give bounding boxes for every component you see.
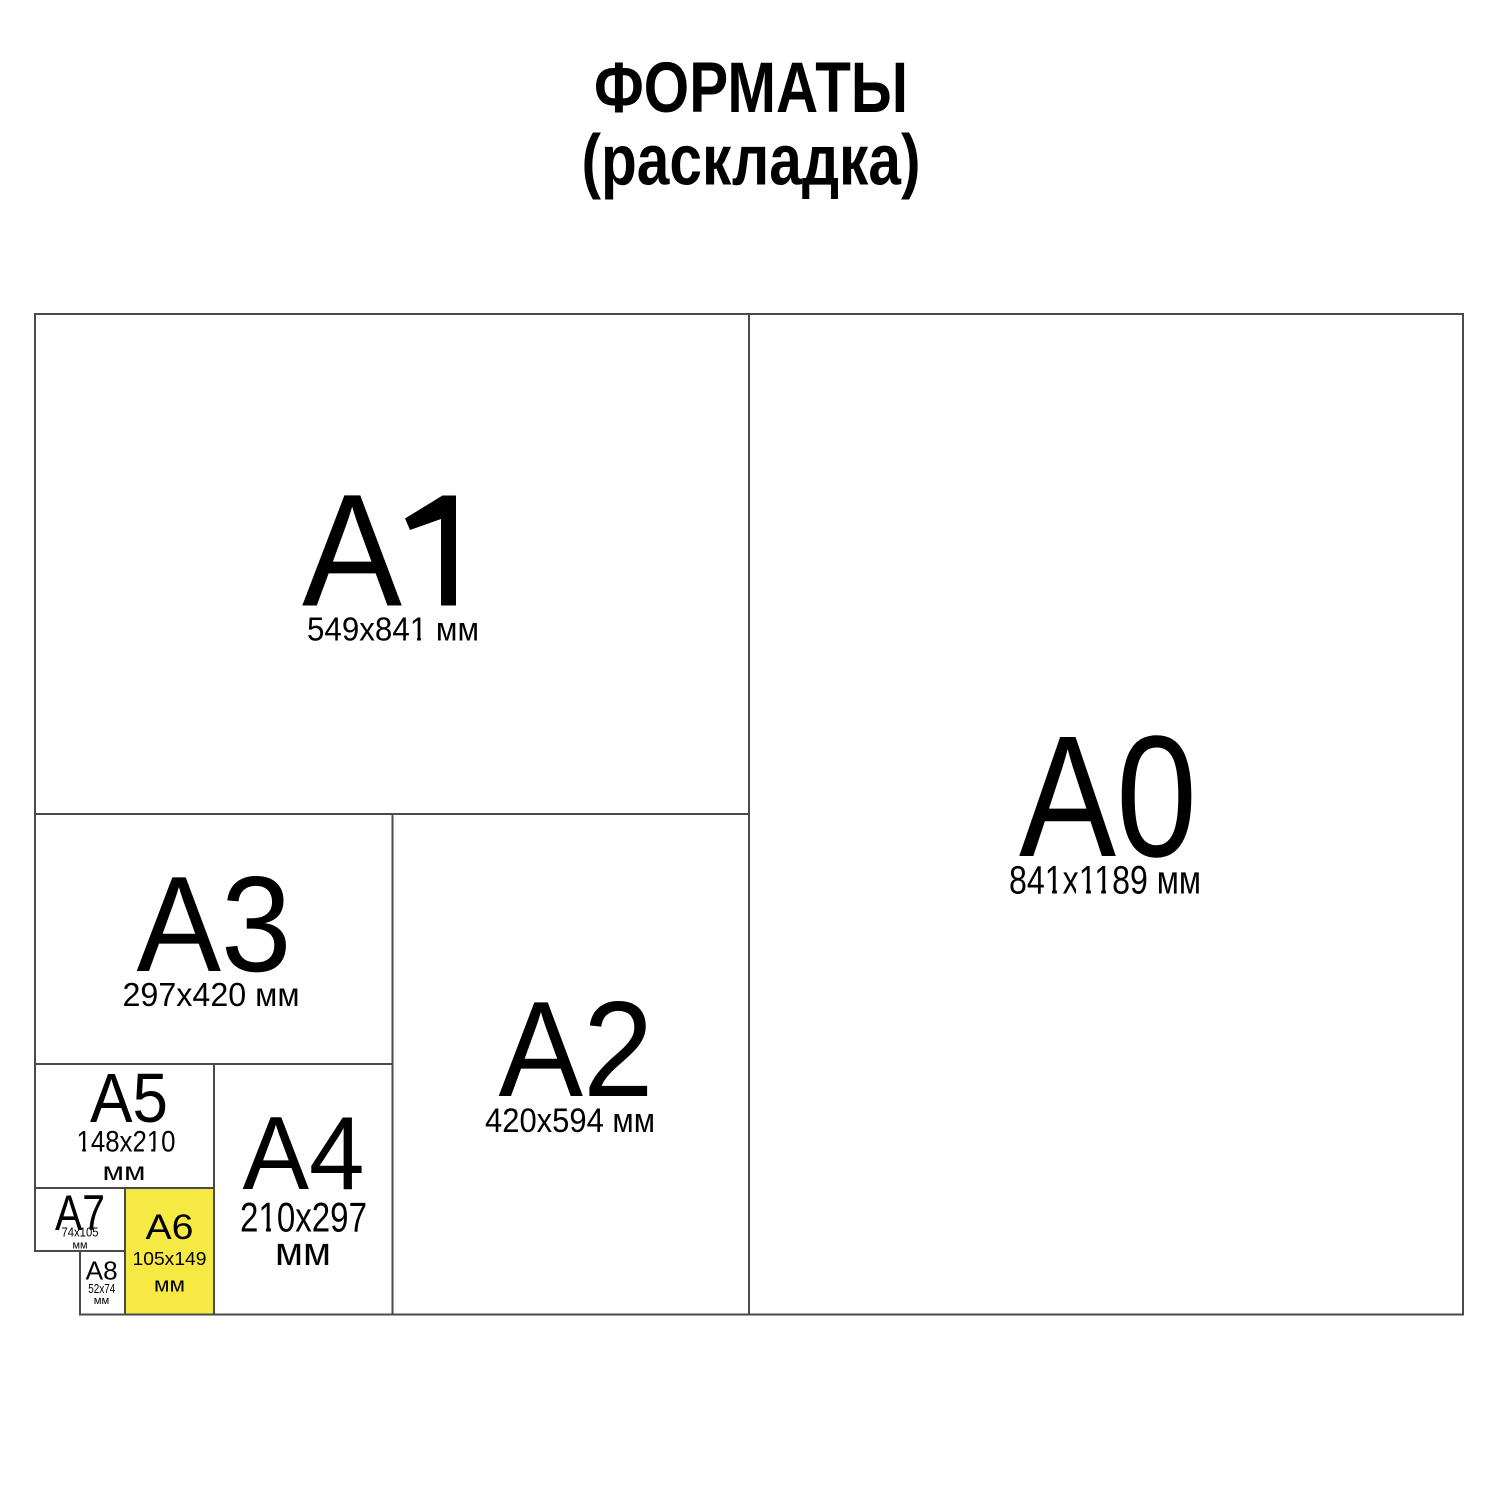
svg-text:841х1189 мм: 841х1189 мм xyxy=(1009,859,1201,903)
svg-text:549х841 мм: 549х841 мм xyxy=(307,611,479,648)
svg-text:мм: мм xyxy=(73,1240,88,1252)
svg-text:74х105: 74х105 xyxy=(62,1225,99,1240)
svg-text:(раскладка): (раскладка) xyxy=(582,122,921,201)
svg-text:А6: А6 xyxy=(146,1208,194,1247)
svg-text:мм: мм xyxy=(275,1230,331,1274)
svg-text:105х149: 105х149 xyxy=(133,1249,207,1269)
svg-text:ФОРМАТЫ: ФОРМАТЫ xyxy=(594,49,908,128)
svg-text:мм: мм xyxy=(103,1158,146,1186)
svg-text:297х420 мм: 297х420 мм xyxy=(123,976,300,1013)
svg-text:52х74: 52х74 xyxy=(88,1281,115,1296)
svg-text:420х594 мм: 420х594 мм xyxy=(485,1102,655,1140)
svg-text:148х210: 148х210 xyxy=(77,1126,176,1159)
svg-text:мм: мм xyxy=(154,1275,185,1297)
svg-text:мм: мм xyxy=(94,1295,110,1307)
